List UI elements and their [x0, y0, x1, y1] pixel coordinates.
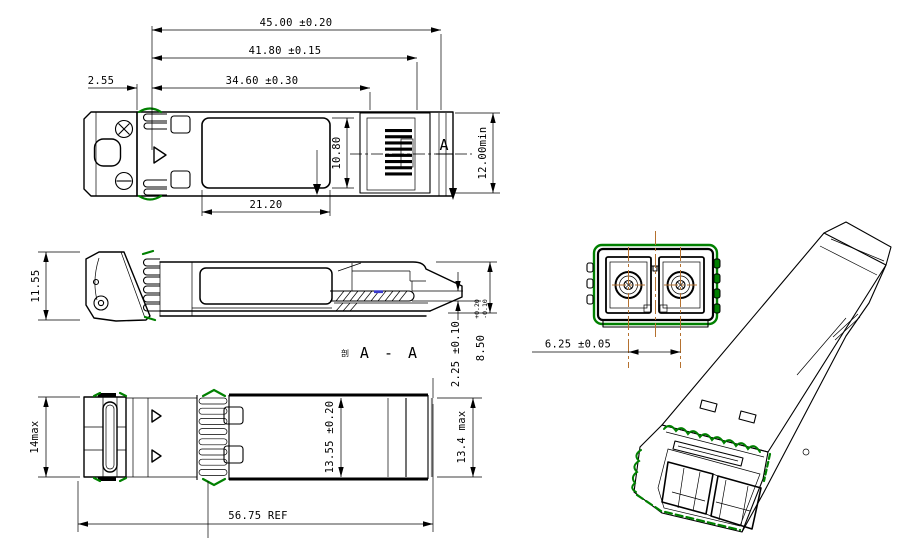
bail-handle-slot: [103, 402, 117, 472]
dim-34-60: 34.60 ±0.30: [226, 75, 299, 87]
edge-connector-pads: [385, 129, 412, 176]
dim-13-4-max: 13.4 max: [456, 411, 468, 464]
dim-14-max: 14max: [29, 420, 41, 453]
dim-41-80: 41.80 ±0.15: [249, 45, 322, 57]
gasket-fingers-left: [587, 263, 593, 304]
pcb-edge-section: [330, 290, 414, 301]
leader-arrow-down: [313, 184, 321, 195]
iso-vent-1: [700, 400, 717, 412]
emi-spring-fingers-side: [143, 251, 160, 320]
screw-bottom: [116, 173, 133, 190]
lc-front-view: 6.25 ±0.05: [532, 231, 720, 368]
bail-slot: [95, 139, 121, 166]
dim-13-55: 13.55 ±0.20: [324, 401, 336, 474]
dim-8-50-tol-plus: +0.20: [473, 299, 481, 319]
dim-8-50-tol-minus: -0.10: [481, 299, 489, 319]
bottom-view: 14max 13.55 ±0.20 13.4 max 56.75 REF: [29, 390, 482, 538]
orientation-triangle: [154, 147, 166, 163]
iso-vent-2: [739, 411, 756, 423]
label-recess: [202, 118, 330, 188]
top-view: A: [84, 109, 472, 201]
top-view-dimensions: 45.00 ±0.20 41.80 ±0.15 34.60 ±0.30 2.55…: [88, 17, 500, 216]
dim-21-20: 21.20: [249, 199, 282, 211]
iso-lc-opening-left: [662, 462, 713, 514]
side-section-view: 11.55 2.25 ±0.10 8.50 +0.20 -0.10 剖 A - …: [30, 251, 497, 398]
dim-56-75-ref: 56.75 REF: [228, 510, 288, 522]
screw-top: [116, 121, 133, 138]
iso-rear-tail: [824, 222, 891, 265]
section-view-prefix: 剖: [341, 348, 349, 358]
section-view-label: A - A: [360, 344, 420, 362]
dim-10-80: 10.80: [331, 136, 343, 169]
dim-2-25: 2.25 ±0.10: [450, 321, 462, 387]
pcb-highlight: [374, 290, 383, 293]
dim-2-55: 2.55: [88, 75, 115, 87]
emi-ladder-fingers: [197, 390, 229, 485]
bail-bottom: [84, 397, 126, 477]
section-cut-letter: A: [439, 136, 448, 154]
drawing-svg: A 45.00 ±0.20 41.80 ±0.15 34.60 ±0.30 2.…: [0, 0, 910, 547]
dim-12-00-min: 12.00min: [477, 127, 489, 180]
edge-connector: [360, 113, 430, 193]
dim-11-55: 11.55: [30, 269, 42, 302]
side-pocket: [200, 268, 332, 304]
iso-side-hole: [803, 449, 809, 455]
dim-6-25: 6.25 ±0.05: [545, 339, 611, 351]
bail-latch-side: [86, 252, 150, 321]
dim-overall-45: 45.00 ±0.20: [260, 17, 333, 29]
dim-8-50: 8.50: [475, 335, 487, 362]
mechanical-drawing-canvas: A 45.00 ±0.20 41.80 ±0.15 34.60 ±0.30 2.…: [0, 0, 910, 547]
